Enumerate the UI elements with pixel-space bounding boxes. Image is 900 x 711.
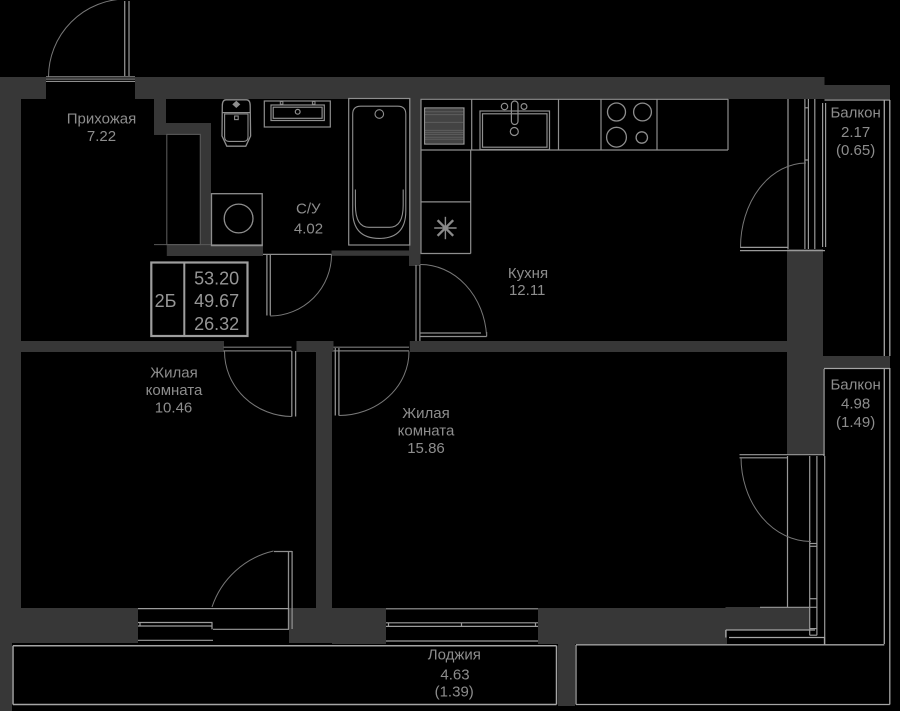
svg-text:4.63: 4.63 <box>440 666 469 683</box>
svg-text:комната: комната <box>146 382 203 399</box>
svg-text:(0.65): (0.65) <box>836 142 875 159</box>
svg-text:15.86: 15.86 <box>407 440 445 457</box>
svg-text:Жилая: Жилая <box>402 405 449 422</box>
svg-text:4.98: 4.98 <box>841 396 870 413</box>
svg-text:Жилая: Жилая <box>150 364 197 381</box>
svg-text:(1.49): (1.49) <box>836 414 875 431</box>
svg-text:10.46: 10.46 <box>155 399 193 416</box>
svg-text:4.02: 4.02 <box>294 221 323 238</box>
svg-text:2Б: 2Б <box>155 291 177 311</box>
svg-text:53.20: 53.20 <box>194 268 239 288</box>
svg-text:(1.39): (1.39) <box>435 684 474 701</box>
svg-text:Прихожая: Прихожая <box>67 110 137 127</box>
svg-text:7.22: 7.22 <box>87 128 116 145</box>
svg-text:49.67: 49.67 <box>194 291 239 311</box>
svg-text:12.11: 12.11 <box>509 282 545 299</box>
svg-text:2.17: 2.17 <box>841 124 870 141</box>
svg-text:Балкон: Балкон <box>830 105 880 122</box>
svg-text:С/У: С/У <box>296 201 321 218</box>
svg-text:комната: комната <box>398 423 455 440</box>
svg-text:26.32: 26.32 <box>194 314 239 334</box>
svg-text:Балкон: Балкон <box>830 377 880 394</box>
svg-text:Кухня: Кухня <box>508 265 548 282</box>
svg-text:Лоджия: Лоджия <box>428 647 481 664</box>
